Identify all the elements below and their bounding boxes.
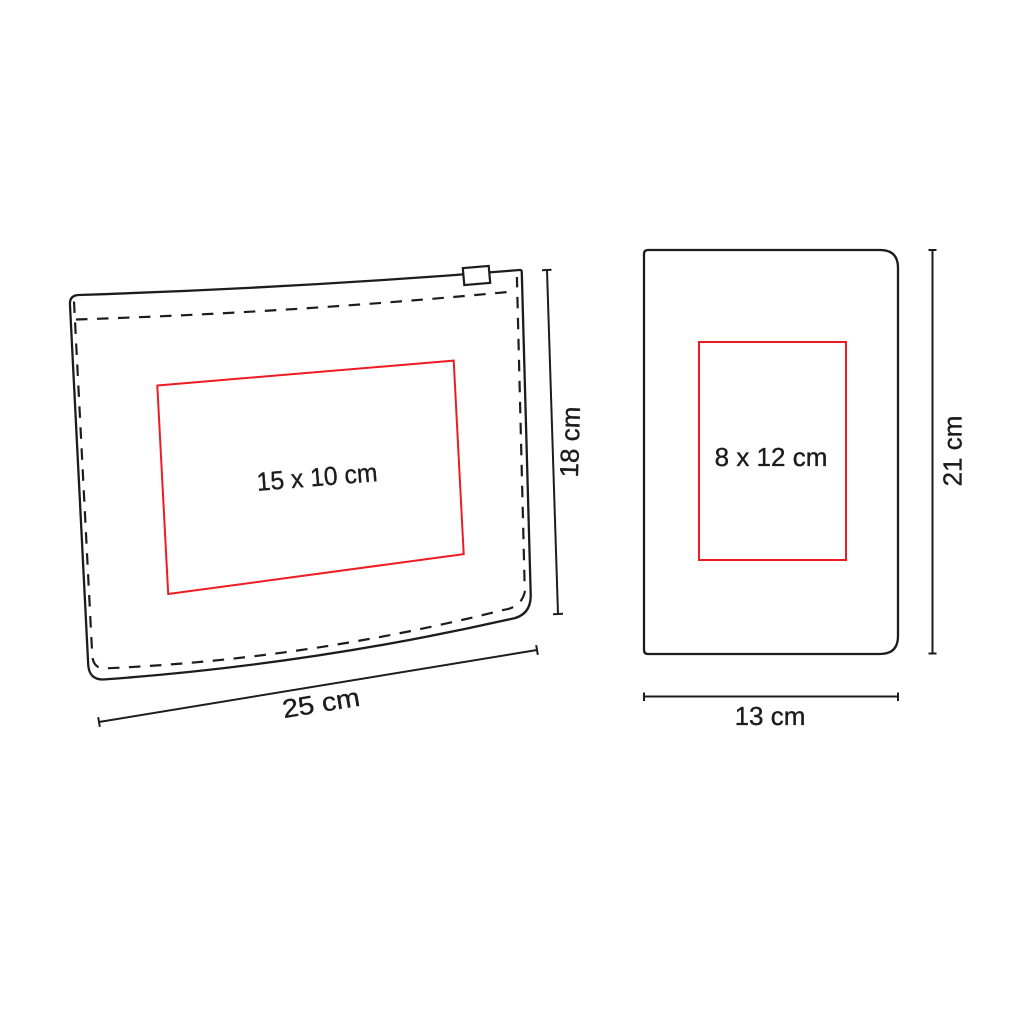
svg-text:8 x 12 cm: 8 x 12 cm bbox=[715, 442, 828, 472]
svg-text:18 cm: 18 cm bbox=[554, 406, 586, 478]
svg-text:21 cm: 21 cm bbox=[938, 416, 968, 487]
svg-text:13 cm: 13 cm bbox=[735, 701, 806, 731]
